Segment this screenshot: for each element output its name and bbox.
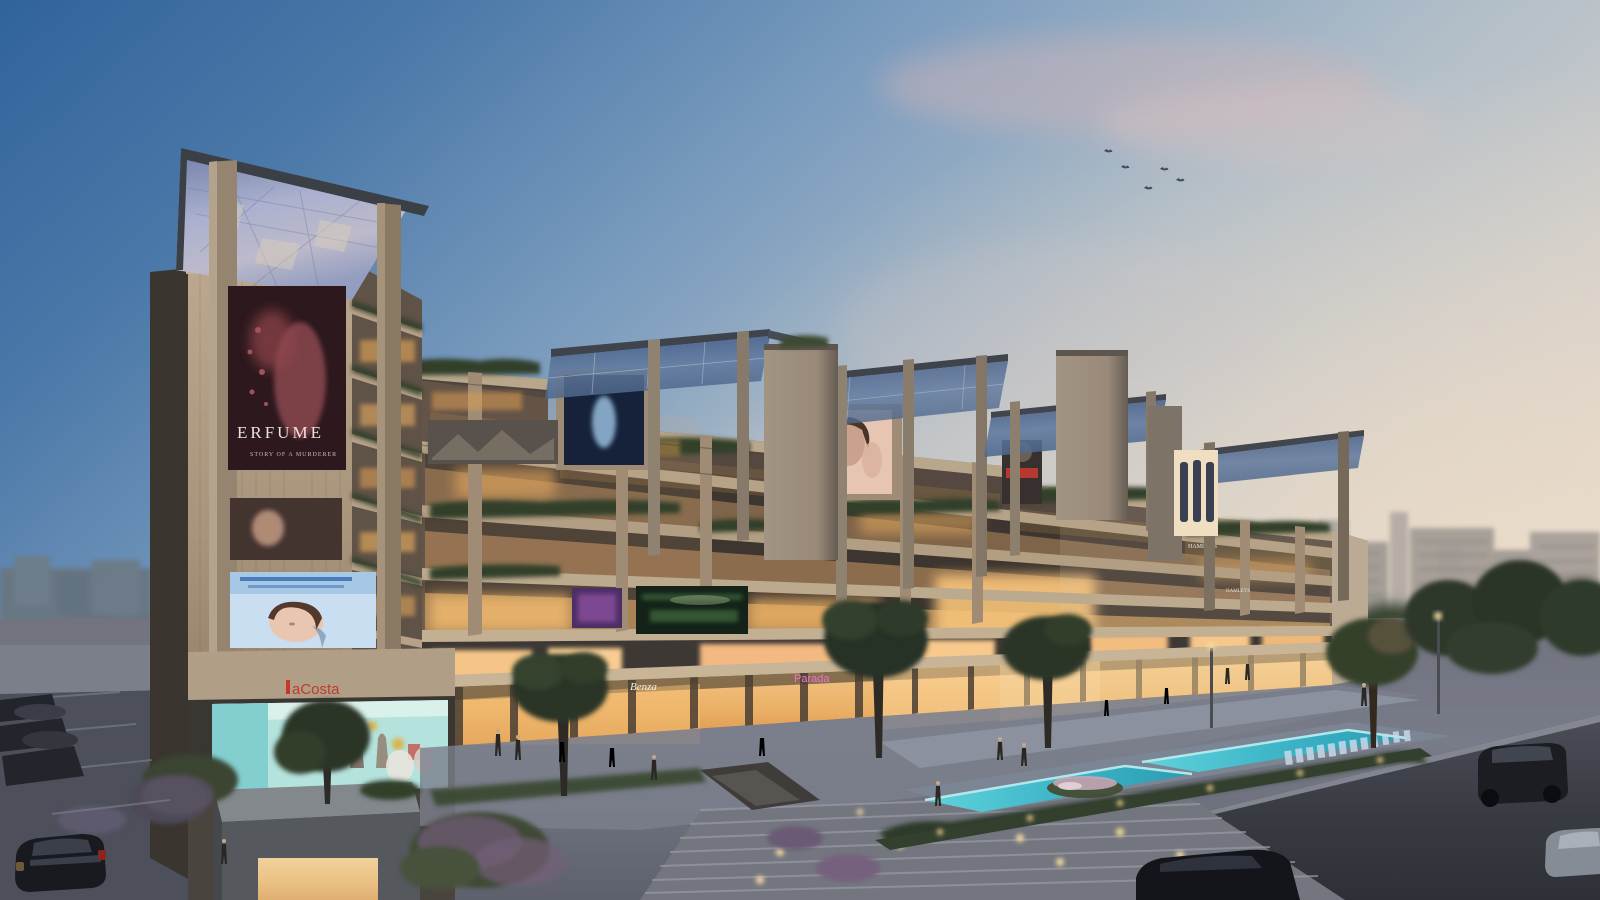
- svg-text:Benza: Benza: [630, 681, 657, 693]
- svg-text:ERFUME: ERFUME: [237, 423, 324, 442]
- svg-text:aCosta: aCosta: [292, 681, 340, 698]
- svg-text:Parada: Parada: [794, 673, 830, 685]
- svg-text:HAMLEYS: HAMLEYS: [1226, 589, 1250, 594]
- svg-text:STORY OF A MURDERER: STORY OF A MURDERER: [250, 452, 337, 458]
